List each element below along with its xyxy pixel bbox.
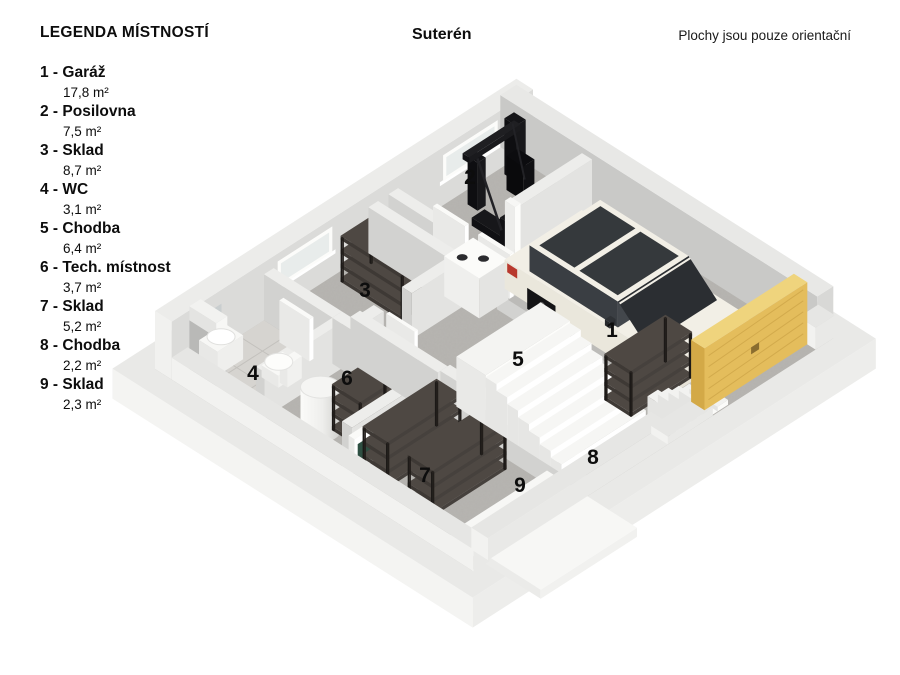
room-label-7: 7 bbox=[419, 464, 431, 487]
room-label-8: 8 bbox=[587, 446, 599, 469]
room-label-9: 9 bbox=[514, 474, 526, 497]
room-label-3: 3 bbox=[359, 279, 371, 302]
room-label-2: 2 bbox=[464, 166, 476, 189]
room-label-6: 6 bbox=[341, 367, 353, 390]
floorplan-3d: 123456789 bbox=[0, 0, 900, 675]
room-label-5: 5 bbox=[512, 348, 524, 371]
page: { "header": { "legend_title": "LEGENDA M… bbox=[0, 0, 900, 675]
scene-root: 123456789 bbox=[112, 79, 875, 628]
room-label-4: 4 bbox=[247, 362, 259, 385]
room-label-1: 1 bbox=[606, 319, 618, 342]
